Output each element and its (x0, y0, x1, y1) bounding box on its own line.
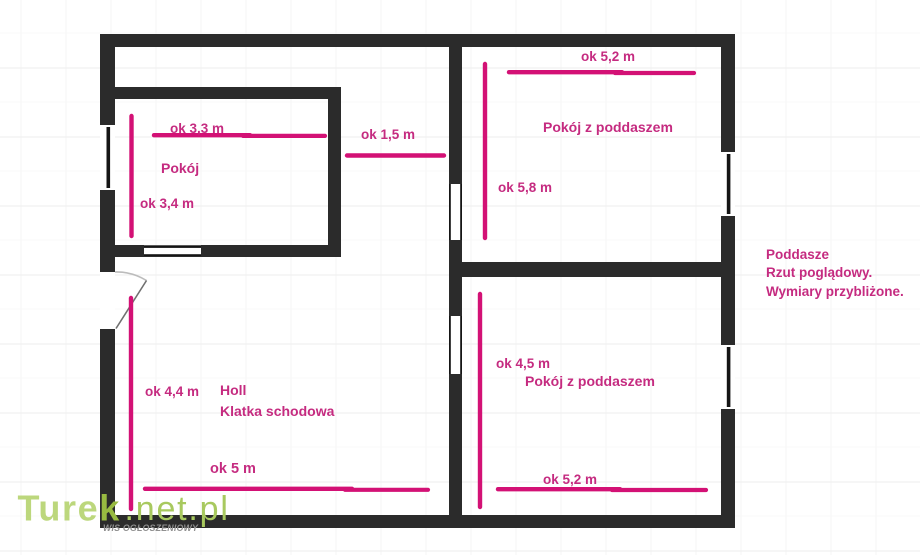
svg-text:ok 5,2 m: ok 5,2 m (581, 49, 635, 64)
svg-text:ok 5,8 m: ok 5,8 m (498, 180, 552, 195)
svg-text:Pokój z poddaszem: Pokój z poddaszem (525, 373, 655, 389)
svg-text:ok 3,3 m: ok 3,3 m (170, 121, 224, 136)
svg-text:ok 1,5 m: ok 1,5 m (361, 127, 415, 142)
svg-text:Holl: Holl (220, 382, 246, 398)
svg-text:ok 5 m: ok 5 m (210, 461, 256, 477)
svg-text:Wymiary przybliżone.: Wymiary przybliżone. (766, 284, 904, 299)
svg-text:Klatka schodowa: Klatka schodowa (220, 403, 335, 419)
svg-text:WIS OGŁOSZENIOWY: WIS OGŁOSZENIOWY (103, 523, 199, 533)
svg-text:Poddasze: Poddasze (766, 247, 830, 262)
svg-text:ok 3,4 m: ok 3,4 m (140, 196, 194, 211)
svg-text:ok 4,4 m: ok 4,4 m (145, 384, 199, 399)
svg-text:Pokój: Pokój (161, 160, 199, 176)
svg-text:ok 5,2 m: ok 5,2 m (543, 472, 597, 487)
svg-text:Pokój z poddaszem: Pokój z poddaszem (543, 119, 673, 135)
svg-text:Rzut poglądowy.: Rzut poglądowy. (766, 265, 872, 280)
svg-text:ok 4,5 m: ok 4,5 m (496, 356, 550, 371)
